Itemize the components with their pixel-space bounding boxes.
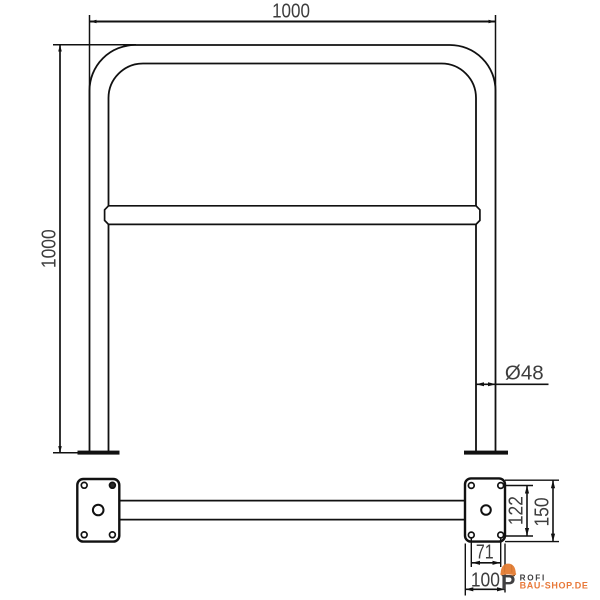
svg-text:1000: 1000	[38, 229, 61, 268]
svg-text:Ø48: Ø48	[505, 362, 544, 385]
svg-text:P: P	[501, 570, 515, 594]
svg-text:71: 71	[476, 540, 494, 563]
svg-text:BAU-SHOP.DE: BAU-SHOP.DE	[520, 580, 589, 590]
svg-text:122: 122	[505, 496, 528, 525]
svg-text:100: 100	[471, 569, 500, 592]
svg-text:1000: 1000	[272, 0, 310, 22]
svg-text:150: 150	[531, 497, 554, 526]
